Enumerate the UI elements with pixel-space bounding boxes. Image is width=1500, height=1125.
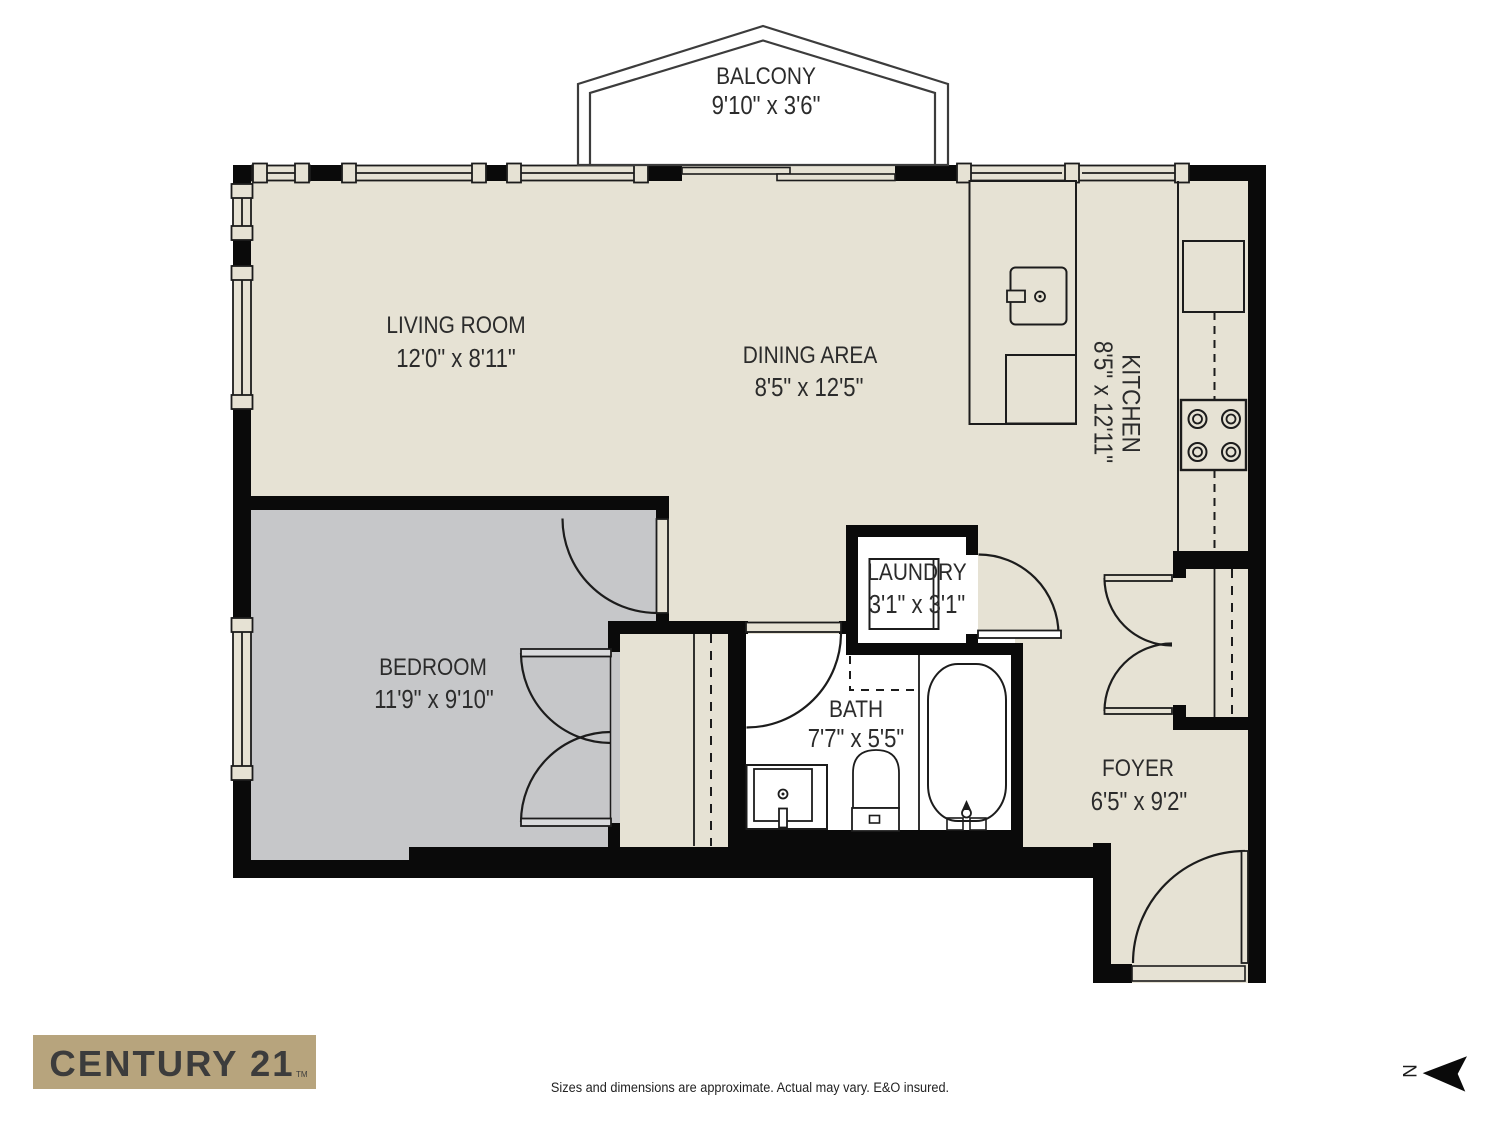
svg-text:9'10" x 3'6": 9'10" x 3'6"	[712, 91, 821, 120]
svg-text:TM: TM	[296, 1070, 308, 1079]
svg-text:7'7" x 5'5": 7'7" x 5'5"	[808, 724, 905, 753]
svg-text:3'1" x 3'1": 3'1" x 3'1"	[869, 590, 966, 619]
svg-text:KITCHEN: KITCHEN	[1116, 354, 1144, 453]
svg-text:LIVING ROOM: LIVING ROOM	[386, 312, 525, 339]
svg-text:N: N	[1398, 1064, 1419, 1078]
svg-text:8'5" x 12'5": 8'5" x 12'5"	[755, 373, 864, 402]
svg-text:11'9" x 9'10": 11'9" x 9'10"	[374, 685, 493, 714]
svg-text:DINING AREA: DINING AREA	[743, 342, 878, 369]
svg-text:BATH: BATH	[829, 696, 883, 723]
svg-text:BALCONY: BALCONY	[716, 63, 816, 90]
svg-text:8'5" x 12'11": 8'5" x 12'11"	[1088, 341, 1117, 463]
svg-text:Sizes and dimensions are appro: Sizes and dimensions are approximate. Ac…	[551, 1079, 949, 1095]
svg-text:LAUNDRY: LAUNDRY	[867, 559, 966, 586]
svg-text:BEDROOM: BEDROOM	[379, 654, 487, 681]
svg-text:12'0" x 8'11": 12'0" x 8'11"	[396, 344, 515, 373]
svg-text:FOYER: FOYER	[1102, 755, 1174, 782]
svg-text:CENTURY 21: CENTURY 21	[49, 1043, 294, 1084]
svg-text:6'5" x 9'2": 6'5" x 9'2"	[1091, 787, 1188, 816]
